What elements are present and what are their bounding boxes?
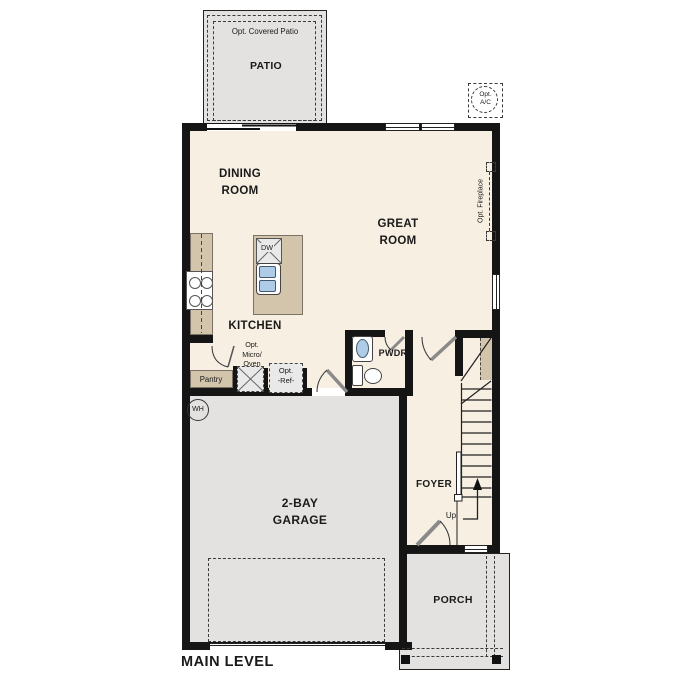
fireplace-cap-bottom [486, 231, 496, 241]
porch-post-right [492, 655, 501, 664]
cooktop [186, 271, 213, 310]
floor-plan-canvas: WH [0, 0, 687, 687]
garage-label: 2-BAY GARAGE [240, 495, 360, 530]
sink-bowl-bottom [259, 280, 276, 292]
vanity-basin [356, 339, 369, 358]
toilet-bowl [364, 368, 382, 384]
water-heater-label: WH [192, 405, 204, 414]
wall-kitchen-stub [182, 335, 213, 343]
pantry-label: Pantry [189, 375, 233, 385]
opt-micro-oven-label: Opt. Micro/ Oven [229, 340, 275, 369]
sink-bowl-top [259, 266, 276, 278]
burner-2 [201, 277, 213, 289]
up-label: Up [440, 511, 462, 521]
powder-vanity [352, 336, 373, 362]
dishwasher-label: DW [260, 243, 274, 252]
opt-ref-label: Opt. -Ref- [270, 366, 302, 386]
toilet-tank [352, 365, 363, 386]
fireplace-cap-top [486, 162, 496, 172]
porch-post-left [401, 655, 410, 664]
wall-stair-stub [455, 330, 463, 376]
foyer-label: FOYER [404, 478, 464, 491]
kitchen-label: KITCHEN [205, 319, 305, 334]
island-sink [256, 263, 281, 295]
garage-door-dashed-area [208, 558, 385, 642]
burner-1 [189, 277, 201, 289]
main-level-title: MAIN LEVEL [181, 653, 341, 672]
opt-ac-label: Opt. A/C [468, 91, 503, 107]
wall-garage-right [399, 388, 407, 650]
window-entry-sidelite [464, 545, 488, 553]
porch-label: PORCH [423, 594, 483, 608]
wall-powder-right [405, 330, 413, 396]
window-great-room-north-1 [385, 123, 420, 131]
burner-3 [189, 295, 201, 307]
window-great-room-east [492, 274, 500, 310]
foyer-floor [407, 388, 492, 545]
water-heater-circle: WH [187, 399, 209, 421]
wall-cabinet-divider-c [303, 368, 307, 393]
porch-dashed-v1 [486, 556, 487, 657]
wall-powder-left [345, 330, 352, 396]
garage-door-opening [210, 643, 385, 650]
opt-micro-oven-box [237, 366, 264, 392]
porch-dashed-v2 [494, 556, 495, 657]
fireplace-dashed-line [489, 172, 490, 231]
burner-4 [201, 295, 213, 307]
dining-room-label: DINING ROOM [190, 166, 290, 199]
wall-right [492, 123, 500, 553]
wall-cabinet-divider-b [264, 368, 268, 393]
porch-dashed-h2 [402, 656, 503, 657]
patio-label: PATIO [206, 60, 326, 74]
window-great-room-north-2 [421, 123, 455, 131]
great-room-label: GREAT ROOM [348, 216, 448, 249]
patio-slider-opening [207, 124, 296, 132]
wall-left [182, 123, 190, 650]
powder-room-label: PWDR [374, 348, 412, 360]
wall-garage-top-east [347, 388, 407, 396]
stair-upper-flight [480, 338, 492, 380]
porch-dashed-h1 [402, 648, 503, 649]
opt-covered-patio-label: Opt. Covered Patio [205, 27, 325, 37]
